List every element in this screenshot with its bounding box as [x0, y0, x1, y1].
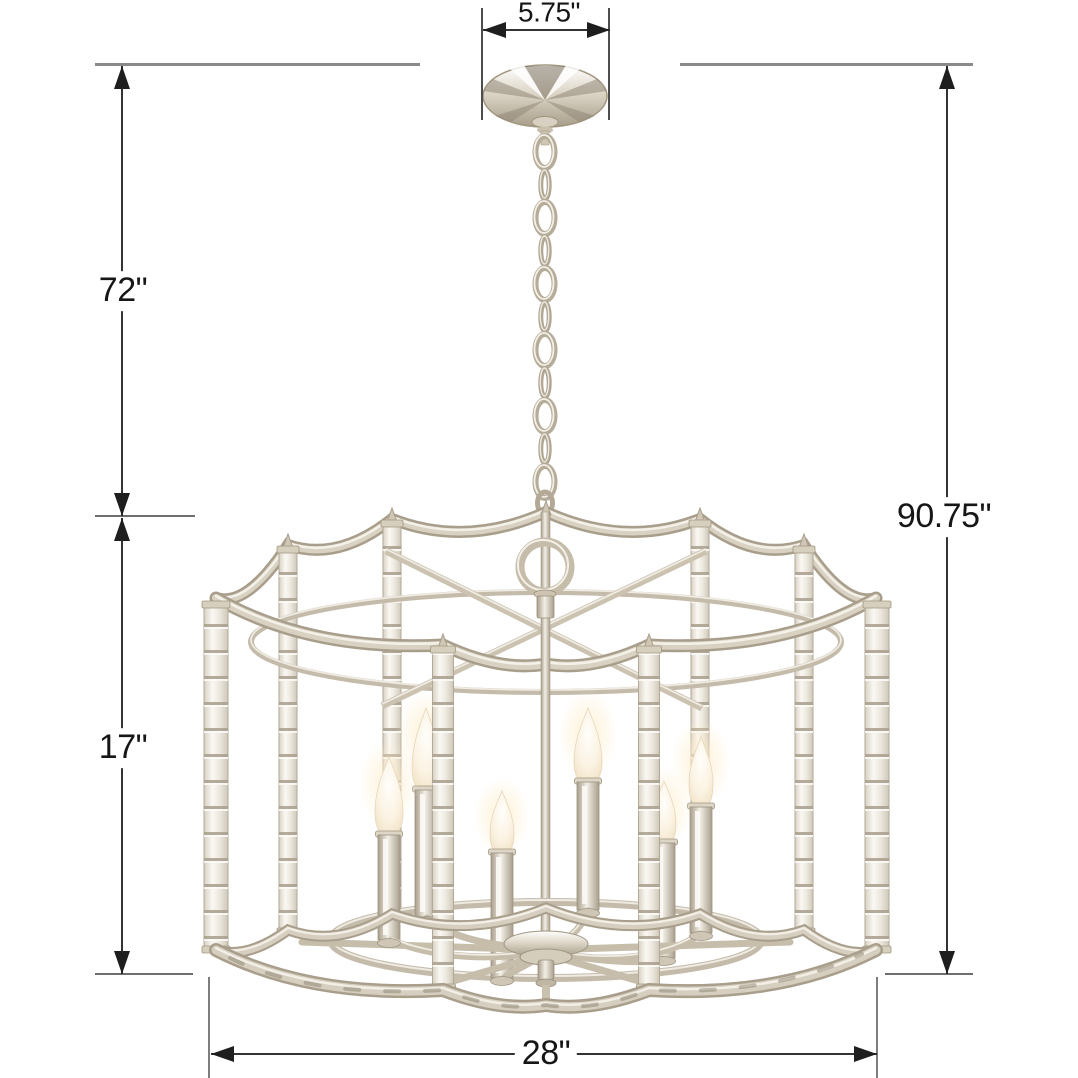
- dimension-label-chain-drop: 72": [92, 271, 154, 311]
- tick-body-top: [95, 515, 195, 517]
- chandelier-illustration: [0, 0, 1078, 1078]
- arrow-up-icon: [939, 66, 955, 89]
- extension-line: [876, 977, 878, 1078]
- arrow-down-icon: [114, 493, 130, 516]
- tick-body-bottom-right: [885, 973, 973, 975]
- arrow-left-icon: [483, 22, 506, 38]
- extension-line: [208, 977, 210, 1078]
- arrow-down-icon: [114, 951, 130, 974]
- tick-body-bottom-left: [95, 973, 193, 975]
- arrow-up-icon: [114, 66, 130, 89]
- dimension-label-body-width: 28": [515, 1034, 577, 1074]
- dimension-line: [483, 29, 610, 31]
- product-dimension-diagram: 5.75" 72" 17" 90.75" 28": [0, 0, 1078, 1078]
- arrow-down-icon: [939, 951, 955, 974]
- dimension-label-overall-height: 90.75": [890, 497, 998, 537]
- arrow-left-icon: [211, 1046, 234, 1062]
- hanging-chain: [535, 135, 555, 514]
- dimension-label-canopy-width: 5.75": [513, 0, 585, 27]
- dimension-label-body-height: 17": [92, 728, 154, 768]
- ceiling-line-left: [95, 63, 420, 66]
- arrow-up-icon: [114, 518, 130, 541]
- arrow-right-icon: [854, 1046, 877, 1062]
- ceiling-line-right: [680, 63, 973, 66]
- arrow-right-icon: [587, 22, 610, 38]
